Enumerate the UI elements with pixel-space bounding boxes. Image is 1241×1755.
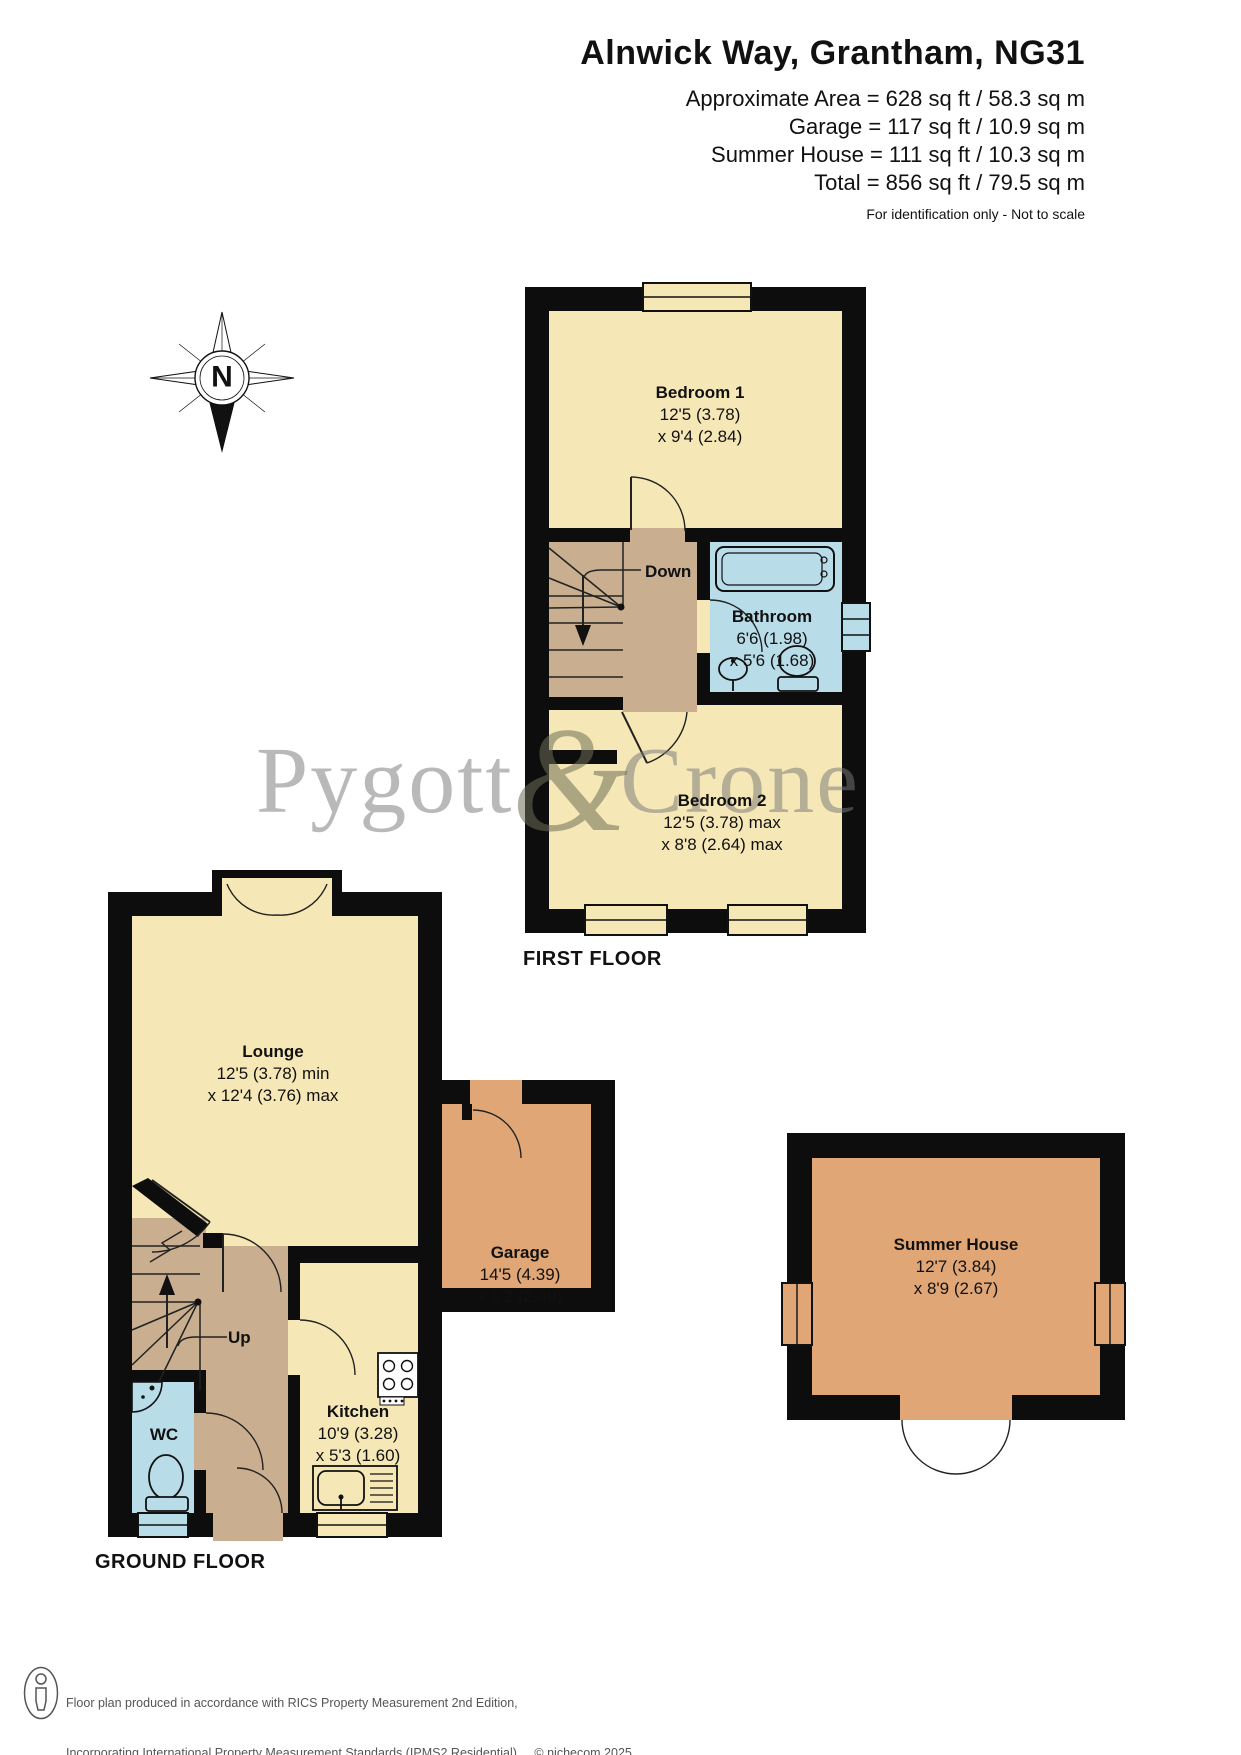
stairs-down-label: Down [645, 562, 691, 582]
summer-house-plan [782, 1133, 1125, 1474]
area-total: Total = 856 sq ft / 79.5 sq m [580, 169, 1085, 197]
room-label-kitchen: Kitchen 10'9 (3.28) x 5'3 (1.60) [316, 1401, 401, 1467]
area-approximate: Approximate Area = 628 sq ft / 58.3 sq m [580, 85, 1085, 113]
kitchen-hob [378, 1353, 418, 1405]
room-label-bedroom1: Bedroom 1 12'5 (3.78) x 9'4 (2.84) [656, 382, 745, 448]
room-label-bathroom: Bathroom 6'6 (1.98) x 5'6 (1.68) [730, 606, 815, 672]
person-icon [25, 1668, 58, 1719]
stairs-up-label: Up [228, 1328, 251, 1348]
room-label-wc: WC [150, 1424, 178, 1446]
hallway-floor [206, 1246, 288, 1513]
area-summer-house: Summer House = 111 sq ft / 10.3 sq m [580, 141, 1085, 169]
front-door-opening [213, 1513, 283, 1541]
footer-disclaimer: Floor plan produced in accordance with R… [66, 1662, 635, 1755]
watermark-ampersand: & [512, 697, 631, 863]
footer-copyright: © nichecom 2025. [534, 1746, 635, 1755]
compass-north-label: N [211, 361, 233, 395]
floorplan-page: Alnwick Way, Grantham, NG31 Approximate … [0, 0, 1241, 1755]
summer-house-doors [902, 1420, 1010, 1474]
ground-floor-title: GROUND FLOOR [95, 1551, 265, 1574]
compass-south-point [209, 401, 235, 453]
room-label-lounge: Lounge 12'5 (3.78) min x 12'4 (3.76) max [208, 1041, 339, 1107]
first-floor-title: FIRST FLOOR [523, 948, 662, 971]
plan-header: Alnwick Way, Grantham, NG31 Approximate … [580, 34, 1085, 222]
floorplan-drawing [0, 0, 1241, 1755]
area-garage: Garage = 117 sq ft / 10.9 sq m [580, 113, 1085, 141]
room-label-bedroom2: Bedroom 2 12'5 (3.78) max x 8'8 (2.64) m… [661, 790, 782, 856]
footer-line1: Floor plan produced in accordance with R… [66, 1695, 635, 1712]
scale-disclaimer: For identification only - Not to scale [580, 206, 1085, 222]
footer-line2: Incorporating International Property Mea… [66, 1745, 635, 1755]
room-label-garage: Garage 14'5 (4.39) x 8'2 (2.49) [478, 1242, 563, 1308]
room-label-summer-house: Summer House 12'7 (3.84) x 8'9 (2.67) [894, 1234, 1019, 1300]
page-title: Alnwick Way, Grantham, NG31 [580, 34, 1085, 73]
